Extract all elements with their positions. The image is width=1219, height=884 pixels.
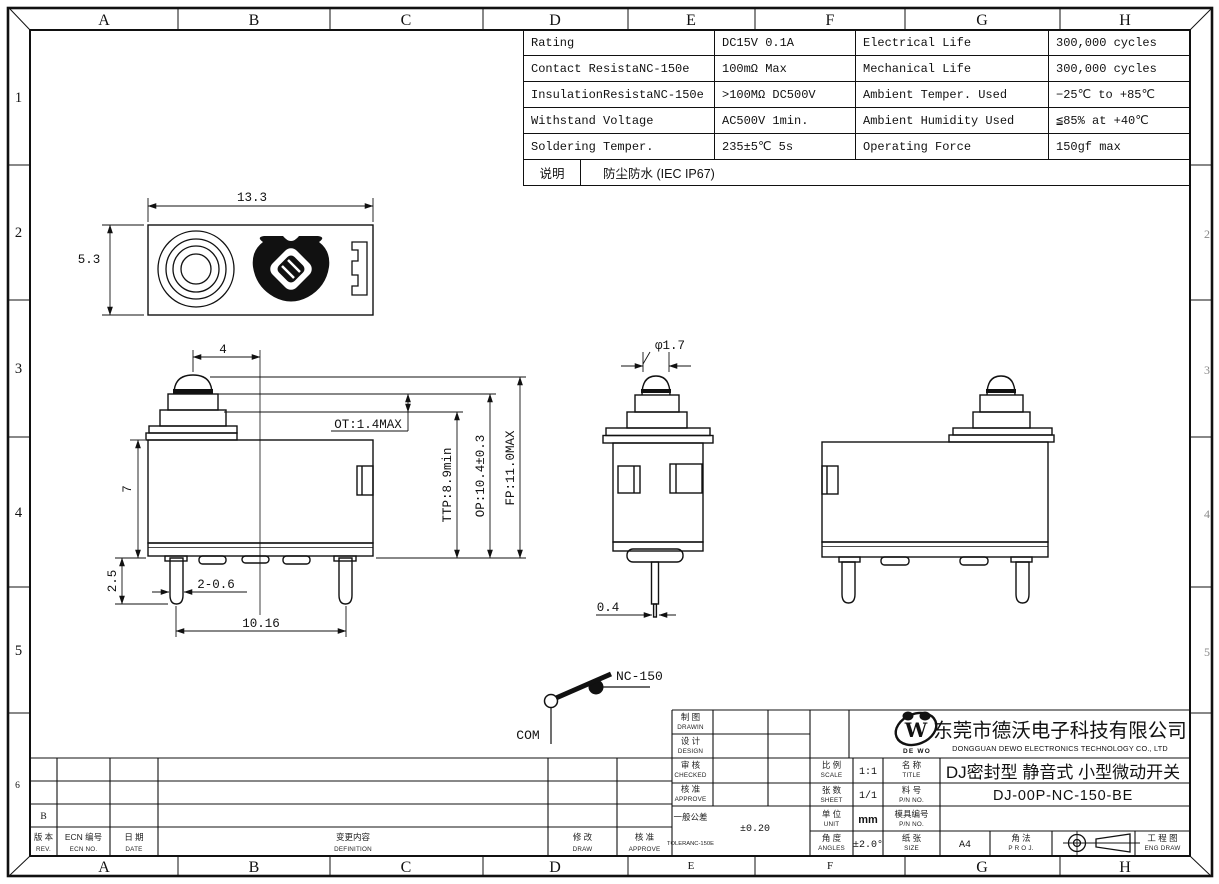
- zone-col-label: H: [1119, 12, 1131, 29]
- sheet-en: SHEET: [821, 797, 843, 804]
- spec-value: 150gf max: [1049, 134, 1191, 159]
- spec-param: Contact ResistaNC-150e: [524, 56, 715, 81]
- dim-plunger-diameter: φ1.7: [655, 339, 685, 353]
- spec-row: Contact ResistaNC-150e 100mΩ Max Mechani…: [524, 56, 1191, 82]
- design-en: DESIGN: [678, 748, 704, 755]
- spec-value: DC15V 0.1A: [715, 30, 856, 55]
- right-pin: [339, 558, 352, 604]
- title-label-zh: 名 称: [902, 760, 922, 770]
- zone-row-label: 4: [15, 505, 23, 521]
- zone-row-label: 6: [15, 781, 20, 791]
- scale-en: SCALE: [821, 772, 843, 779]
- zone-col-label: C: [401, 859, 412, 876]
- spec-param: Withstand Voltage: [524, 108, 715, 133]
- approve-label-en: APPROVE: [629, 846, 661, 853]
- dim-op: OP:10.4±0.3: [474, 435, 488, 518]
- sheet-value: 1/1: [859, 790, 877, 802]
- proj-label-zh: 角 法: [1011, 833, 1030, 843]
- pn-label-zh: 料 号: [902, 785, 921, 795]
- spec-value: AC500V 1min.: [715, 108, 856, 133]
- drawin-en: DRAWIN: [677, 724, 704, 731]
- plunger-rings: [158, 231, 234, 307]
- spec-param: Electrical Life: [856, 30, 1049, 55]
- top-view-dimensions: [102, 198, 373, 315]
- dim-pin-length: 2.5: [106, 570, 120, 593]
- angles-value: ±2.0°: [853, 839, 883, 851]
- dim-pin-width: 2-0.6: [197, 578, 235, 592]
- zone-col-label: E: [688, 860, 695, 872]
- part-number: DJ-00P-NC-150-BE: [993, 788, 1133, 804]
- dim-height: 5.3: [78, 253, 101, 267]
- approve-en: APPROVE: [675, 796, 707, 803]
- scale-value: 1:1: [859, 767, 877, 778]
- zone-col-label: A: [98, 859, 110, 876]
- dewo-logo-text: DE WO: [903, 748, 931, 755]
- spec-param: Ambient Temper. Used: [856, 82, 1049, 107]
- spec-param: Soldering Temper.: [524, 134, 715, 159]
- engdraw-label-zh: 工 程 图: [1147, 833, 1177, 843]
- zone-row-label-right: 4: [1204, 507, 1210, 521]
- zone-row-label-right: 5: [1204, 645, 1210, 659]
- pn-label-en: P/N NO.: [899, 797, 924, 804]
- zone-col-label: F: [827, 860, 833, 872]
- dim-fp: FP:11.0MAX: [504, 430, 518, 506]
- com-label: COM: [516, 728, 539, 743]
- side-view: φ1.7 0.4: [596, 339, 713, 617]
- design-zh: 设 计: [681, 736, 701, 746]
- spec-value: −25℃ to +85℃: [1049, 82, 1191, 107]
- dewo-logo-letter: W: [904, 718, 928, 742]
- zone-col-label: A: [98, 12, 110, 29]
- drawing-title: DJ密封型 静音式 小型微动开关: [946, 763, 1180, 782]
- front-view: 4 OT:1.4MAX TTP:8.9min OP:10.4±0.3 FP:11…: [106, 343, 526, 637]
- size-label-en: SIZE: [904, 845, 919, 852]
- spec-row: Withstand Voltage AC500V 1min. Ambient H…: [524, 108, 1191, 134]
- zone-row-label: 2: [15, 225, 22, 241]
- zone-col-label: D: [549, 859, 561, 876]
- zone-row-label-right: 2: [1204, 227, 1210, 241]
- zone-col-label: H: [1119, 859, 1131, 876]
- spec-row: InsulationResistaNC-150e >100MΩ DC500V A…: [524, 82, 1191, 108]
- dim-width: 13.3: [237, 191, 267, 205]
- spec-value: >100MΩ DC500V: [715, 82, 856, 107]
- spec-param: Ambient Humidity Used: [856, 108, 1049, 133]
- spec-table: Rating DC15V 0.1A Electrical Life 300,00…: [523, 30, 1191, 186]
- title-label-en: TITLE: [902, 772, 920, 779]
- unit-zh: 单 位: [822, 809, 842, 819]
- top-view: 13.3 5.3: [78, 191, 373, 315]
- date-label-zh: 日 期: [124, 832, 143, 842]
- zone-col-label: G: [976, 12, 988, 29]
- company-name-zh: 东莞市德沃电子科技有限公司: [933, 720, 1187, 742]
- spec-value: ≦85% at +40℃: [1049, 108, 1191, 133]
- right-view: [822, 376, 1054, 603]
- tolerance-en: TOLERANC-150E: [667, 841, 714, 847]
- dim-ot: OT:1.4MAX: [334, 418, 402, 432]
- dim-body-height: 7: [121, 485, 135, 493]
- nc-label: NC-150: [616, 669, 663, 684]
- sheet-zh: 张 数: [822, 785, 842, 795]
- spec-param: Rating: [524, 30, 715, 55]
- spec-row: Rating DC15V 0.1A Electrical Life 300,00…: [524, 30, 1191, 56]
- side-connector-topview: [352, 242, 367, 295]
- dim-offset: 4: [219, 343, 227, 357]
- scale-zh: 比 例: [822, 760, 841, 770]
- unit-en: UNIT: [824, 821, 840, 828]
- zone-col-label: G: [976, 859, 988, 876]
- date-label-en: DATE: [125, 846, 142, 853]
- zone-row-label-right: 3: [1204, 363, 1210, 377]
- circuit-diagram: NC-150 COM: [516, 669, 663, 744]
- spec-value: 100mΩ Max: [715, 56, 856, 81]
- spec-value: 235±5℃ 5s: [715, 134, 856, 159]
- engineering-drawing-page: A B C D E F G H A B C D E F G H 1 2 3 4 …: [0, 0, 1219, 884]
- dim-pin-tip: 0.4: [597, 601, 620, 615]
- zone-col-label: B: [249, 859, 260, 876]
- ecn-label-en: ECN NO.: [70, 846, 98, 853]
- zone-col-label: E: [686, 12, 696, 29]
- spec-value: 300,000 cycles: [1049, 56, 1191, 81]
- unit-value: mm: [858, 814, 878, 826]
- approve-label-zh: 核 准: [635, 832, 655, 842]
- zone-col-label: B: [249, 12, 260, 29]
- first-angle-projection-icon: [1063, 831, 1140, 855]
- checked-en: CHECKED: [674, 772, 706, 779]
- spec-value: 300,000 cycles: [1049, 30, 1191, 55]
- dim-ttp: TTP:8.9min: [441, 447, 455, 522]
- angles-en: ANGLES: [818, 845, 845, 852]
- mold-label-zh: 模具编号: [894, 809, 928, 819]
- size-value: A4: [959, 840, 971, 851]
- mold-label-en: P/N NO.: [899, 821, 924, 828]
- rev-label-en: REV.: [36, 846, 51, 853]
- tolerance-zh: 一般公差: [673, 812, 707, 822]
- spec-row: Soldering Temper. 235±5℃ 5s Operating Fo…: [524, 134, 1191, 160]
- dewo-mark-topview: [253, 236, 330, 302]
- angles-zh: 角 度: [822, 833, 842, 843]
- spec-note-row: 说明 防尘防水 (IEC IP67): [524, 160, 1191, 186]
- spec-param: Mechanical Life: [856, 56, 1049, 81]
- dim-pitch: 10.16: [242, 617, 280, 631]
- zone-row-label: 5: [15, 643, 22, 659]
- ecn-label-zh: ECN 编号: [65, 832, 102, 842]
- approve-zh: 核 准: [681, 784, 701, 794]
- note-value: 防尘防水 (IEC IP67): [581, 160, 1191, 185]
- draw-label-zh: 修 改: [573, 832, 593, 842]
- spec-param: Operating Force: [856, 134, 1049, 159]
- zone-col-label: C: [401, 12, 412, 29]
- revision-table: B 版 本 REV. ECN 编号 ECN NO. 日 期 DATE 变更内容 …: [34, 812, 661, 853]
- drawin-zh: 制 图: [681, 712, 700, 722]
- draw-label-en: DRAW: [573, 846, 593, 853]
- zone-col-label: D: [549, 12, 561, 29]
- spec-param: InsulationResistaNC-150e: [524, 82, 715, 107]
- zone-col-label: F: [826, 12, 835, 29]
- definition-label-zh: 变更内容: [336, 832, 371, 842]
- left-pin: [170, 558, 183, 604]
- rev-label-zh: 版 本: [34, 832, 54, 842]
- engdraw-label-en: ENG DRAW: [1145, 845, 1181, 852]
- tolerance-value: ±0.20: [740, 824, 770, 835]
- definition-label-en: DEFINITION: [334, 846, 372, 853]
- revision-entry: B: [40, 812, 46, 822]
- company-name-en: DONGGUAN DEWO ELECTRONICS TECHNOLOGY CO.…: [952, 744, 1168, 753]
- proj-label-en: P R O J.: [1008, 845, 1033, 852]
- note-label: 说明: [524, 160, 581, 185]
- size-label-zh: 纸 张: [902, 833, 922, 843]
- zone-row-label: 3: [15, 361, 22, 377]
- checked-zh: 审 核: [681, 760, 701, 770]
- zone-row-label: 1: [15, 90, 22, 106]
